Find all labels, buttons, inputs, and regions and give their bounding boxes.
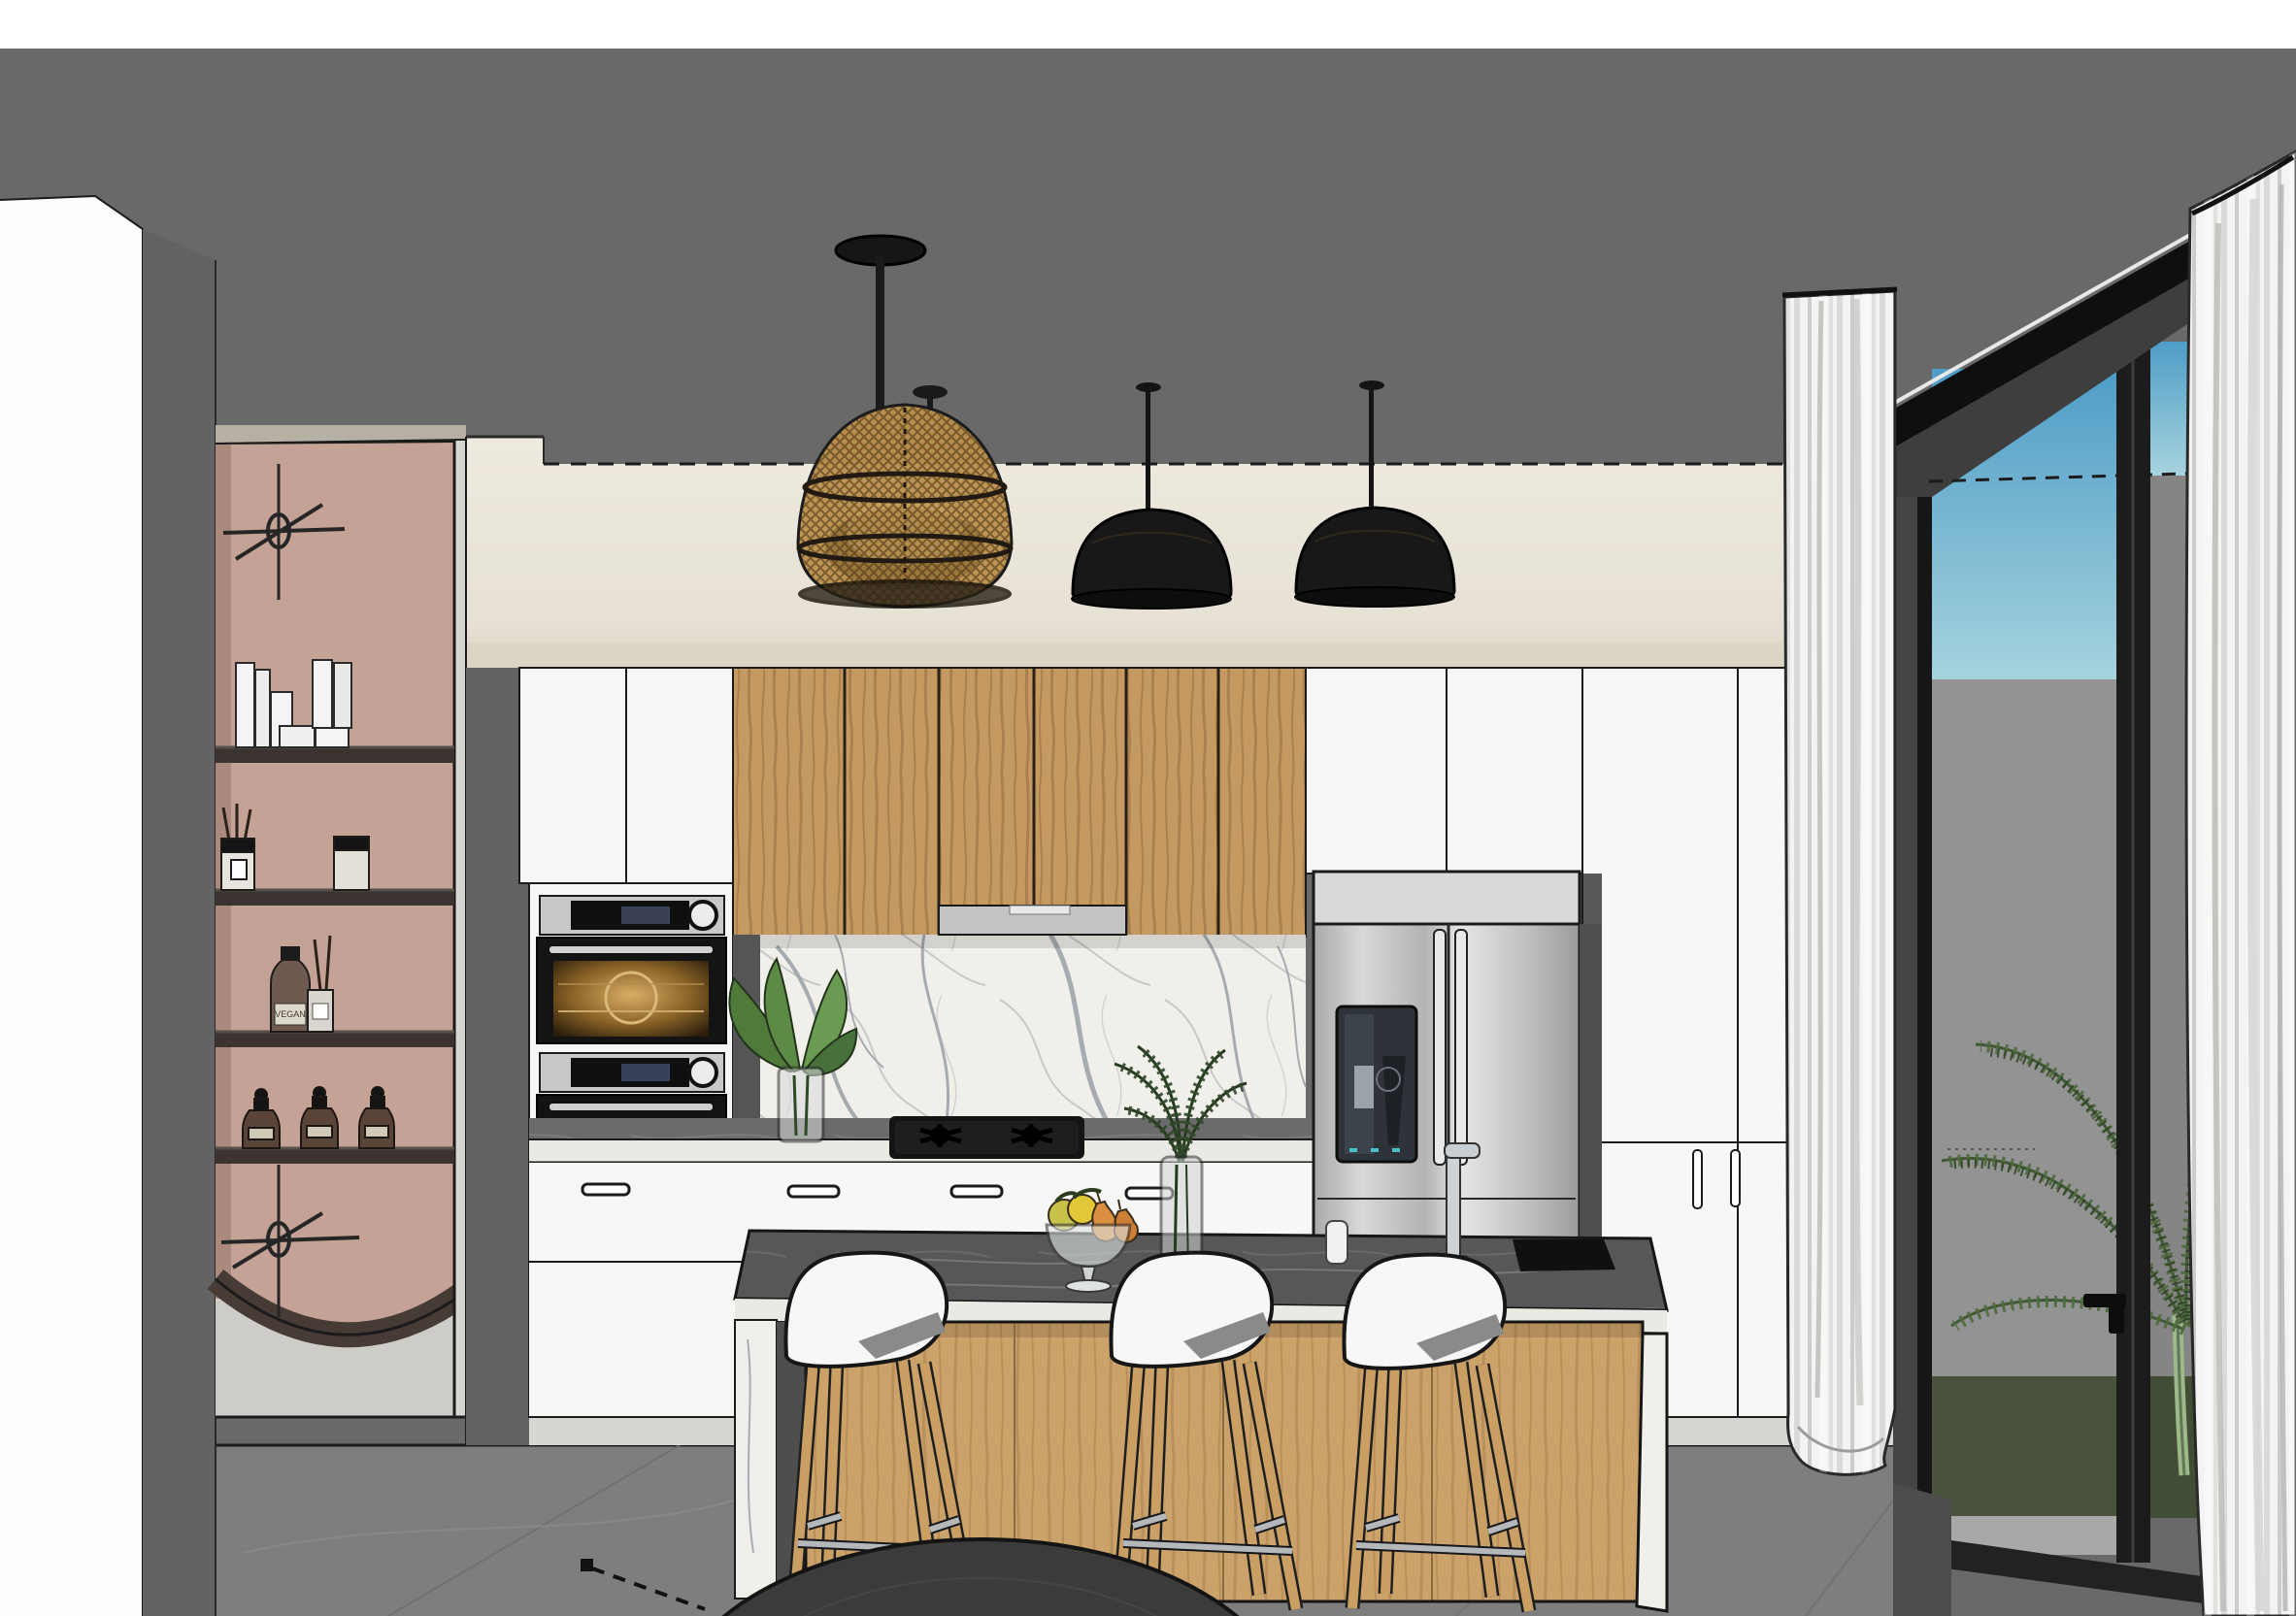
soap-dispenser: [1326, 1221, 1348, 1264]
pantry-handle: [1731, 1150, 1740, 1206]
upper-cabinets-timber: [733, 668, 1306, 937]
ceiling-band: [0, 0, 2296, 49]
courtyard-hedge: [1932, 1376, 2116, 1518]
curtain-left-panel: [1782, 289, 1897, 1474]
wall-pillar: [143, 229, 216, 1616]
gas-cooktop: [889, 1116, 1084, 1159]
arched-display-niche: VEGAN: [216, 425, 466, 1445]
fridge-dispenser-panel: [1337, 1006, 1416, 1162]
oven-knob: [689, 902, 716, 929]
svg-text:VEGAN: VEGAN: [275, 1009, 306, 1019]
fridge-handle: [1455, 930, 1467, 1165]
soffit-bulkhead: [216, 437, 1893, 670]
courtyard-wall: [1932, 679, 2116, 1378]
left-wall: [0, 196, 143, 1616]
upper-cabinet-white-right: [1306, 668, 1582, 874]
amber-bottles: [243, 1087, 394, 1148]
island-sink: [1513, 1239, 1615, 1271]
pantry-handle: [1693, 1150, 1702, 1208]
wall-oven-upper: [537, 896, 726, 1043]
oven-knob: [689, 1059, 716, 1086]
kitchen-render: VEGAN: [0, 0, 2296, 1616]
fridge-handle: [1434, 930, 1446, 1165]
rangehood: [939, 906, 1126, 935]
island-waterfall-left: [735, 1320, 777, 1599]
curtain-right-panel: [2186, 151, 2296, 1616]
